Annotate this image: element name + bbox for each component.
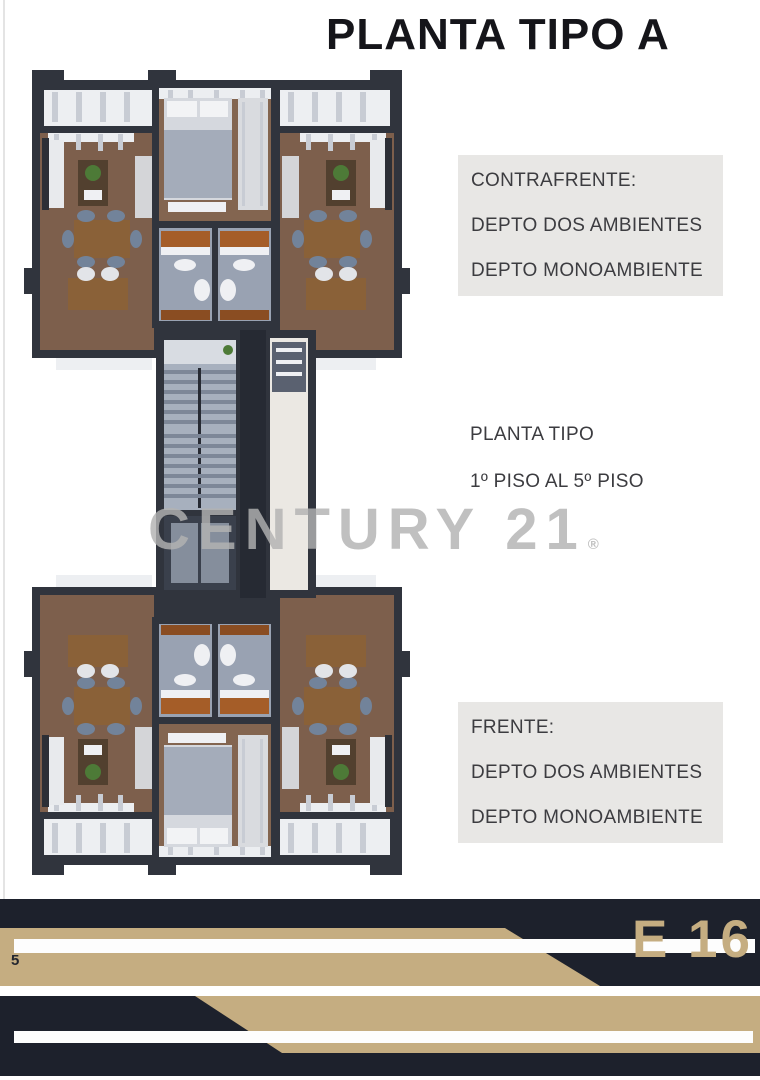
note-line: DEPTO MONOAMBIENTE — [471, 807, 723, 829]
building-code: E 16 — [632, 909, 753, 970]
note-frente: FRENTE: DEPTO DOS AMBIENTES DEPTO MONOAM… — [458, 702, 723, 843]
note-heading: CONTRAFRENTE: — [471, 170, 723, 192]
watermark-text: CENTURY 21 — [148, 497, 586, 562]
page-title: PLANTA TIPO A — [326, 10, 670, 60]
tan-shape-top — [0, 928, 600, 986]
note-heading: FRENTE: — [471, 717, 723, 739]
footer-band-top: 5 E 16 — [0, 899, 760, 986]
footer-banner: 5 E 16 — [0, 899, 760, 1080]
tan-shape-bottom — [195, 996, 760, 1053]
note-contrafrente: CONTRAFRENTE: DEPTO DOS AMBIENTES DEPTO … — [458, 155, 723, 296]
floor-plan-render — [18, 68, 420, 880]
note-line: DEPTO MONOAMBIENTE — [471, 260, 723, 282]
note-line: DEPTO DOS AMBIENTES — [471, 215, 723, 237]
century21-watermark: CENTURY 21® — [148, 496, 599, 563]
page-edge-line — [3, 0, 5, 899]
note-line: PLANTA TIPO — [470, 424, 735, 446]
registered-icon: ® — [588, 536, 599, 553]
note-line: DEPTO DOS AMBIENTES — [471, 762, 723, 784]
note-line: 1º PISO AL 5º PISO — [470, 471, 735, 493]
page-number: 5 — [11, 952, 19, 969]
white-stripe-bottom — [14, 1031, 753, 1043]
footer-band-bottom — [0, 996, 760, 1076]
